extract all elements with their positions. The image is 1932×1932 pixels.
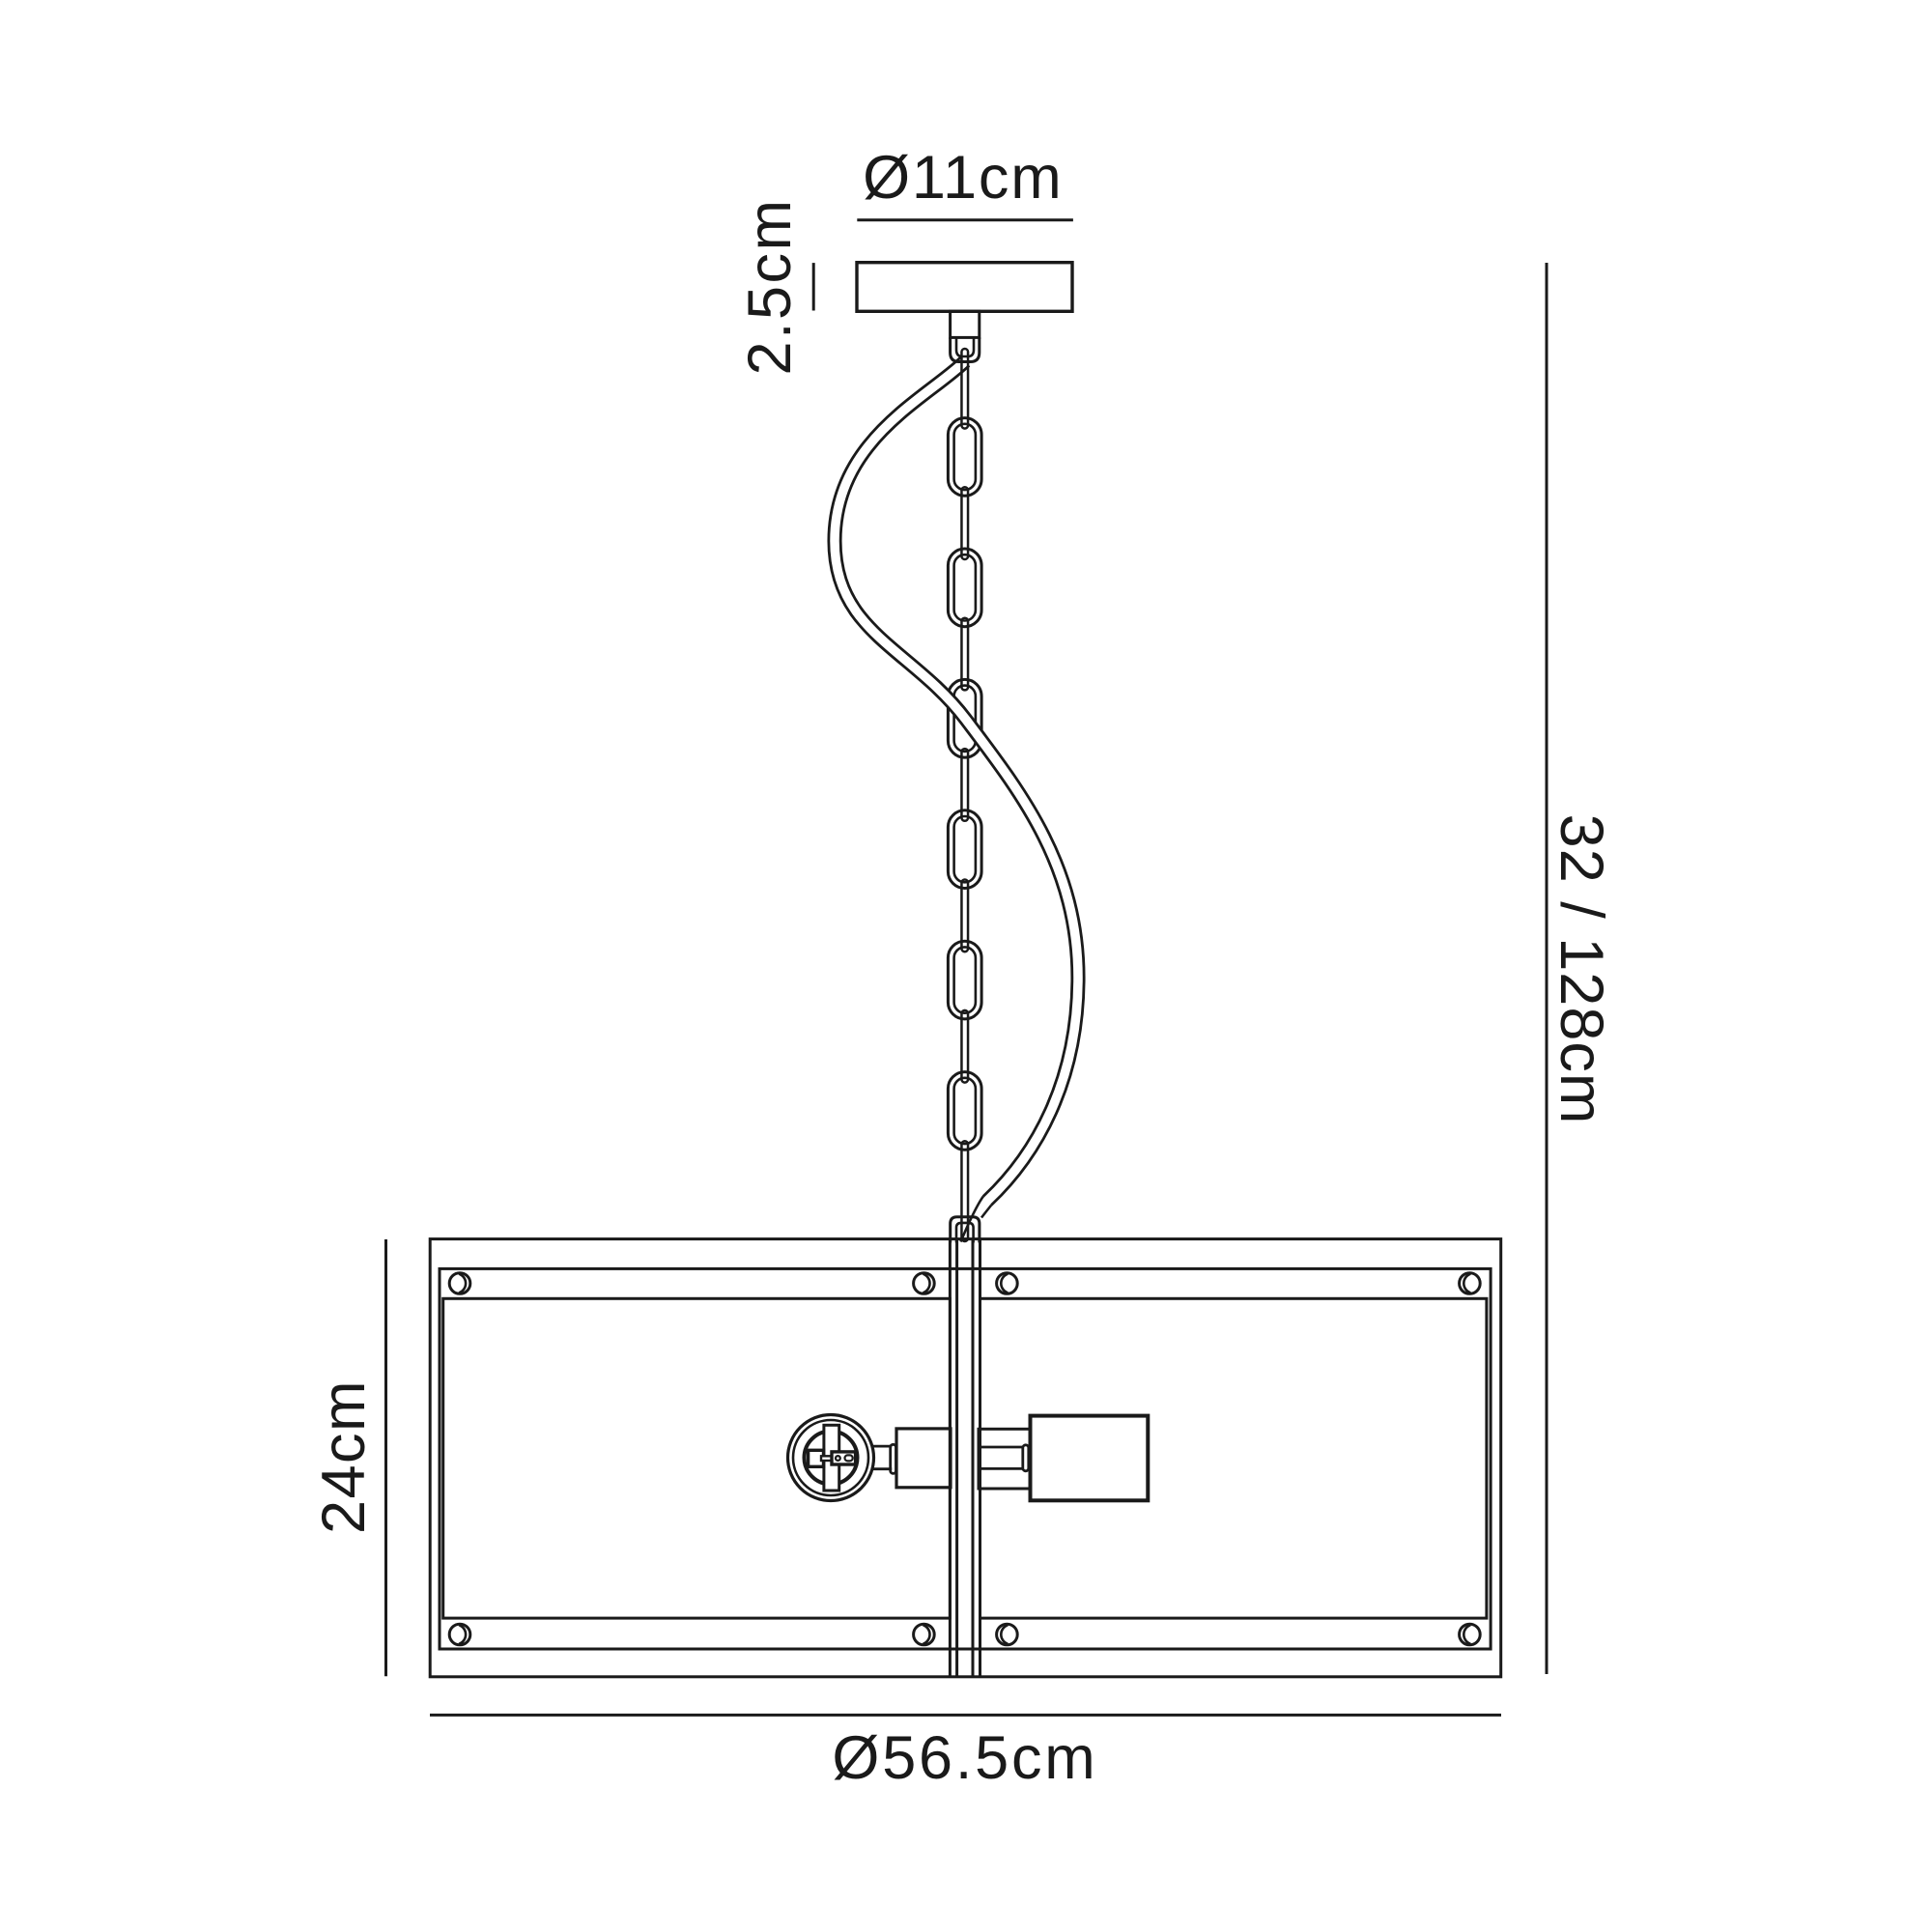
- svg-text:24cm: 24cm: [310, 1379, 378, 1534]
- svg-text:Ø56.5cm: Ø56.5cm: [832, 1724, 1097, 1792]
- svg-text:Ø11cm: Ø11cm: [863, 144, 1063, 212]
- svg-text:32 / 128cm: 32 / 128cm: [1548, 814, 1615, 1125]
- svg-text:2.5cm: 2.5cm: [736, 197, 804, 375]
